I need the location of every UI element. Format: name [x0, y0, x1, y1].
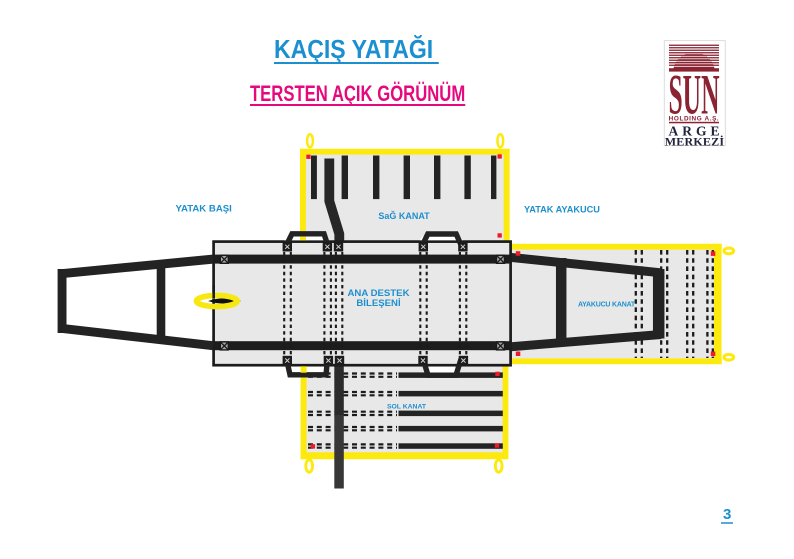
svg-text:YATAK BAŞI: YATAK BAŞI: [176, 203, 233, 214]
svg-text:YATAK AYAKUCU: YATAK AYAKUCU: [524, 205, 600, 215]
svg-text:SOL KANAT: SOL KANAT: [387, 404, 427, 411]
svg-text:AYAKUCU KANAT: AYAKUCU KANAT: [578, 302, 636, 309]
svg-text:SaĞ KANAT: SaĞ KANAT: [378, 210, 430, 221]
svg-text:BİLEŞENİ: BİLEŞENİ: [356, 298, 401, 309]
